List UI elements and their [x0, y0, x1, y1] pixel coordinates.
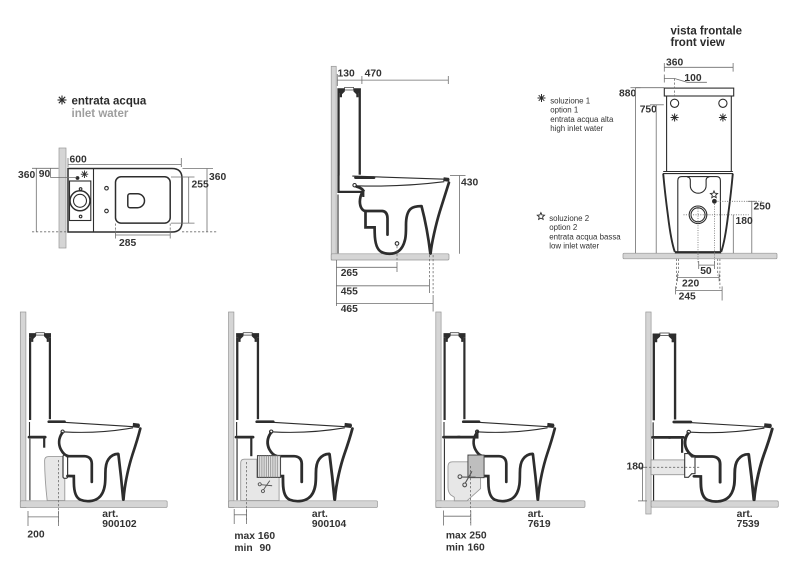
- svg-text:entrata acqua alta: entrata acqua alta: [550, 115, 614, 124]
- svg-text:285: 285: [119, 238, 136, 249]
- svg-text:90: 90: [260, 543, 272, 554]
- svg-text:455: 455: [341, 287, 358, 298]
- svg-text:front view: front view: [671, 37, 725, 49]
- svg-text:180: 180: [627, 461, 644, 472]
- svg-text:option 2: option 2: [549, 223, 577, 232]
- svg-text:360: 360: [209, 172, 226, 183]
- svg-text:50: 50: [700, 266, 712, 277]
- svg-text:900102: 900102: [102, 519, 137, 530]
- svg-text:180: 180: [736, 216, 753, 227]
- svg-text:220: 220: [682, 279, 699, 290]
- svg-text:option 1: option 1: [550, 106, 578, 115]
- svg-text:470: 470: [365, 69, 382, 80]
- svg-text:min: min: [446, 542, 464, 553]
- svg-text:265: 265: [341, 268, 358, 279]
- svg-text:soluzione 2: soluzione 2: [549, 214, 589, 223]
- svg-text:min: min: [234, 543, 252, 554]
- svg-text:high inlet water: high inlet water: [550, 124, 603, 133]
- svg-text:max 160: max 160: [234, 531, 275, 542]
- svg-text:7539: 7539: [737, 519, 760, 530]
- svg-text:465: 465: [341, 304, 358, 315]
- svg-text:430: 430: [461, 178, 478, 189]
- svg-text:880: 880: [619, 89, 636, 100]
- svg-text:vista frontale: vista frontale: [671, 26, 743, 38]
- svg-text:soluzione 1: soluzione 1: [550, 97, 590, 106]
- svg-text:245: 245: [679, 292, 696, 303]
- svg-text:130: 130: [338, 69, 355, 80]
- svg-text:max 250: max 250: [446, 531, 487, 542]
- svg-text:600: 600: [70, 155, 87, 166]
- svg-text:750: 750: [640, 104, 657, 115]
- svg-text:entrata acqua: entrata acqua: [72, 96, 147, 108]
- svg-text:200: 200: [27, 529, 44, 540]
- svg-text:inlet water: inlet water: [72, 108, 129, 120]
- svg-text:160: 160: [468, 542, 485, 553]
- svg-text:250: 250: [754, 202, 771, 213]
- svg-text:7619: 7619: [528, 519, 551, 530]
- svg-text:360: 360: [18, 170, 35, 181]
- svg-text:low inlet water: low inlet water: [549, 242, 599, 251]
- svg-text:900104: 900104: [312, 519, 347, 530]
- svg-text:entrata acqua bassa: entrata acqua bassa: [549, 232, 621, 241]
- svg-text:255: 255: [192, 180, 209, 191]
- svg-text:90: 90: [39, 169, 51, 180]
